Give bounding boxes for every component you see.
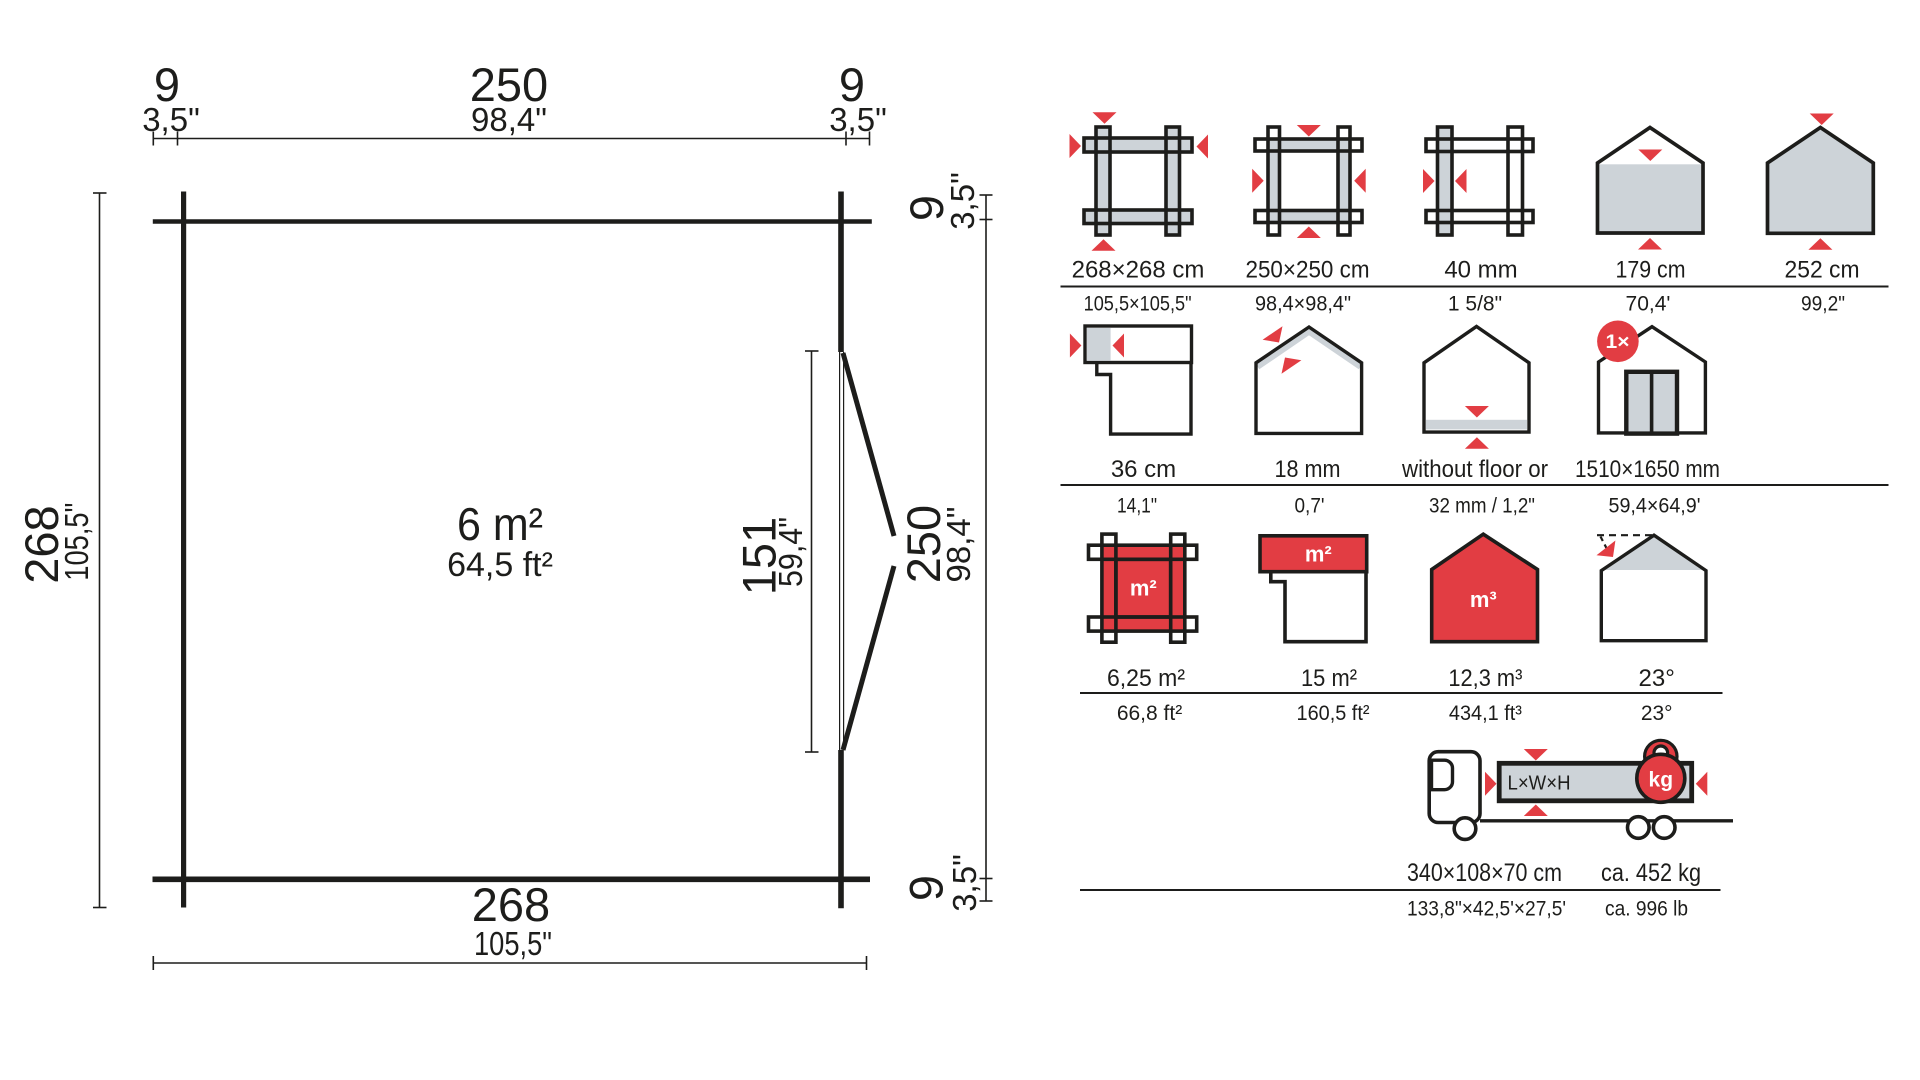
svg-text:98,4×98,4": 98,4×98,4" (1255, 293, 1351, 316)
svg-text:70,4': 70,4' (1626, 293, 1671, 316)
svg-text:59,4×64,9': 59,4×64,9' (1609, 495, 1701, 518)
svg-text:1×: 1× (1606, 331, 1630, 353)
svg-text:0,7': 0,7' (1295, 495, 1325, 518)
svg-text:12,3 m³: 12,3 m³ (1448, 665, 1522, 692)
svg-text:105,5": 105,5" (474, 925, 552, 962)
svg-text:3,5": 3,5" (944, 172, 981, 230)
svg-text:36 cm: 36 cm (1111, 456, 1176, 483)
svg-text:99,2": 99,2" (1801, 293, 1845, 316)
svg-text:98,4": 98,4" (940, 507, 977, 583)
svg-text:L×W×H: L×W×H (1508, 771, 1571, 794)
svg-text:9: 9 (900, 875, 953, 901)
svg-text:23°: 23° (1639, 665, 1675, 692)
svg-text:59,4": 59,4" (772, 517, 809, 587)
svg-text:252 cm: 252 cm (1785, 257, 1860, 284)
svg-text:without floor or: without floor or (1401, 456, 1548, 483)
svg-text:6 m²: 6 m² (457, 498, 543, 550)
svg-text:105,5×105,5": 105,5×105,5" (1084, 293, 1192, 316)
svg-text:kg: kg (1649, 769, 1674, 792)
svg-text:179 cm: 179 cm (1616, 257, 1686, 284)
svg-text:1 5/8": 1 5/8" (1448, 293, 1502, 316)
svg-text:3,5": 3,5" (142, 101, 200, 138)
svg-text:23°: 23° (1641, 702, 1673, 725)
svg-text:ca. 452 kg: ca. 452 kg (1601, 859, 1701, 887)
svg-text:32 mm / 1,2": 32 mm / 1,2" (1429, 495, 1535, 518)
svg-text:98,4": 98,4" (471, 101, 547, 138)
svg-text:434,1 ft³: 434,1 ft³ (1449, 702, 1522, 725)
svg-text:m²: m² (1305, 542, 1332, 567)
svg-text:268: 268 (472, 878, 550, 931)
svg-text:340×108×70 cm: 340×108×70 cm (1407, 859, 1562, 887)
svg-text:ca. 996 lb: ca. 996 lb (1605, 898, 1688, 921)
svg-text:268×268 cm: 268×268 cm (1072, 257, 1205, 284)
svg-text:105,5": 105,5" (58, 503, 95, 581)
svg-text:14,1": 14,1" (1117, 495, 1157, 518)
svg-text:1510×1650 mm: 1510×1650 mm (1575, 456, 1720, 483)
svg-text:3,5": 3,5" (946, 854, 983, 912)
svg-text:133,8"×42,5'×27,5': 133,8"×42,5'×27,5' (1407, 898, 1566, 921)
svg-text:m³: m³ (1470, 587, 1497, 612)
svg-text:15 m²: 15 m² (1301, 665, 1357, 692)
svg-text:160,5 ft²: 160,5 ft² (1297, 702, 1370, 725)
svg-text:66,8 ft²: 66,8 ft² (1117, 702, 1182, 725)
svg-text:6,25 m²: 6,25 m² (1107, 665, 1185, 692)
svg-text:18 mm: 18 mm (1275, 456, 1341, 483)
svg-text:3,5": 3,5" (829, 101, 887, 138)
svg-text:40 mm: 40 mm (1444, 257, 1517, 284)
svg-text:m²: m² (1130, 576, 1157, 601)
svg-text:64,5 ft²: 64,5 ft² (447, 546, 553, 584)
svg-text:250×250 cm: 250×250 cm (1246, 257, 1370, 284)
